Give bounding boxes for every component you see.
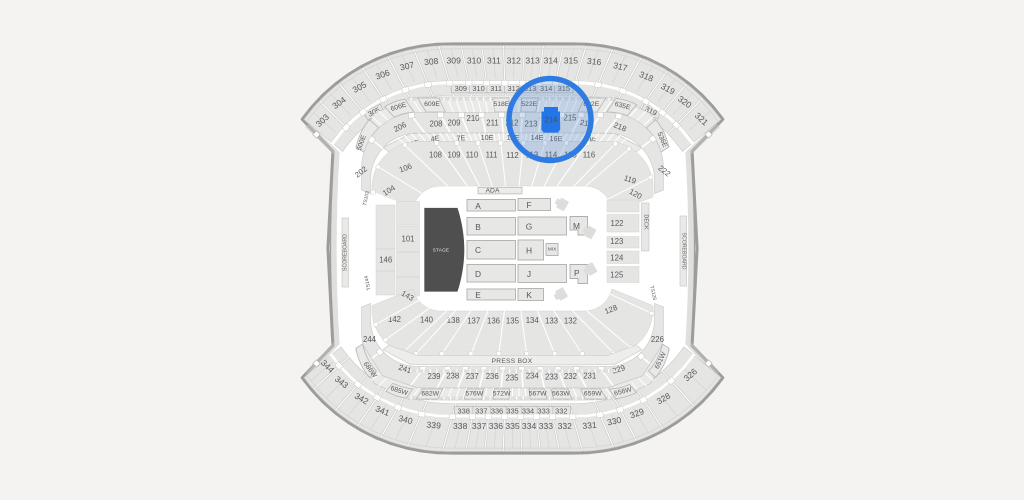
svg-text:337: 337 [472,421,487,431]
svg-text:315: 315 [564,56,579,66]
svg-text:332: 332 [558,421,573,431]
svg-text:339: 339 [426,420,441,431]
svg-text:234: 234 [526,371,540,380]
svg-text:563W: 563W [552,391,570,398]
svg-text:232: 232 [564,372,577,381]
svg-text:309: 309 [447,56,462,66]
svg-text:308: 308 [424,56,439,67]
svg-text:137: 137 [467,317,480,326]
svg-text:338: 338 [458,407,470,416]
svg-text:133: 133 [545,317,558,326]
svg-text:132: 132 [564,317,577,326]
svg-text:567W: 567W [529,391,547,398]
svg-text:237: 237 [466,372,479,381]
svg-text:SCOREBOARD: SCOREBOARD [342,234,348,271]
svg-text:659W: 659W [584,391,602,398]
svg-text:108: 108 [429,151,442,160]
svg-text:124: 124 [610,254,624,263]
svg-text:J: J [527,269,531,279]
svg-text:101: 101 [401,235,414,244]
svg-text:SCOREBOARD: SCOREBOARD [680,233,686,270]
svg-text:310: 310 [467,56,482,66]
svg-text:PRESS BOX: PRESS BOX [492,358,533,365]
svg-text:210: 210 [466,114,480,123]
svg-text:136: 136 [487,317,500,326]
svg-text:239: 239 [427,372,440,381]
svg-text:122: 122 [610,219,623,228]
svg-text:682W: 682W [421,391,439,398]
svg-text:125: 125 [610,271,624,280]
svg-text:H: H [526,246,532,256]
svg-text:E: E [475,290,481,300]
svg-text:134: 134 [526,316,540,325]
svg-text:C: C [475,245,481,255]
svg-text:209: 209 [447,119,460,128]
svg-text:316: 316 [587,56,602,67]
svg-text:K: K [526,290,532,300]
svg-text:233: 233 [545,372,558,381]
svg-text:ADA: ADA [486,187,500,194]
svg-text:332: 332 [555,407,567,416]
svg-text:135: 135 [506,317,520,326]
svg-text:109: 109 [447,151,460,160]
svg-text:111: 111 [486,151,498,160]
svg-text:335: 335 [506,407,518,416]
svg-text:313: 313 [525,56,540,66]
svg-text:336: 336 [489,421,504,431]
svg-text:112: 112 [506,151,518,160]
svg-text:312: 312 [507,56,522,66]
svg-text:231: 231 [583,371,596,380]
svg-text:F: F [526,200,531,210]
svg-text:576W: 576W [465,391,483,398]
svg-text:110: 110 [466,151,479,160]
svg-text:609E: 609E [424,101,440,108]
svg-text:518E: 518E [493,101,509,108]
svg-text:MIX: MIX [548,246,557,252]
svg-text:236: 236 [486,372,499,381]
svg-text:335: 335 [505,421,520,431]
svg-text:226: 226 [651,335,664,344]
svg-text:A: A [475,201,481,211]
svg-text:331: 331 [582,420,597,431]
svg-text:123: 123 [610,237,623,246]
svg-text:G: G [526,222,533,232]
svg-text:10E: 10E [481,133,494,142]
svg-text:214: 214 [544,116,558,125]
svg-text:116: 116 [583,151,595,160]
svg-text:208: 208 [429,120,442,129]
svg-text:DECK: DECK [642,214,648,230]
svg-text:140: 140 [420,316,434,325]
svg-text:309: 309 [455,84,467,93]
svg-text:311: 311 [487,56,501,66]
svg-text:235: 235 [505,374,519,383]
svg-text:B: B [475,222,481,232]
svg-text:314: 314 [544,56,559,66]
svg-text:244: 244 [363,335,377,344]
svg-text:338: 338 [453,421,468,431]
svg-text:334: 334 [522,421,537,431]
svg-text:572W: 572W [493,391,511,398]
svg-text:333: 333 [539,421,554,431]
svg-text:P: P [574,268,580,278]
svg-text:M: M [573,221,580,231]
svg-text:D: D [475,269,481,279]
svg-text:310: 310 [472,84,484,93]
svg-text:146: 146 [379,256,392,265]
svg-text:211: 211 [486,119,498,128]
svg-text:STAGE: STAGE [433,248,449,253]
svg-text:311: 311 [490,84,502,93]
